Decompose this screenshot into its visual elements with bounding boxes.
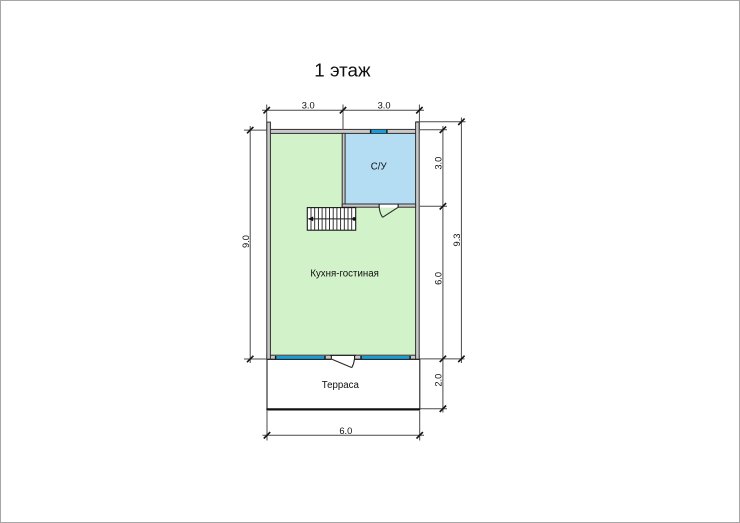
svg-text:1 этаж: 1 этаж <box>314 60 371 81</box>
svg-text:Кухня-гостиная: Кухня-гостиная <box>310 268 379 279</box>
svg-text:Терраса: Терраса <box>322 380 360 391</box>
svg-text:3.0: 3.0 <box>302 100 315 110</box>
svg-text:С/У: С/У <box>371 162 388 173</box>
svg-text:2.0: 2.0 <box>434 374 444 387</box>
svg-text:3.0: 3.0 <box>378 100 391 110</box>
svg-text:9.3: 9.3 <box>452 234 462 247</box>
svg-text:6.0: 6.0 <box>434 272 444 285</box>
svg-text:3.0: 3.0 <box>434 157 444 170</box>
svg-text:6.0: 6.0 <box>339 426 352 436</box>
svg-text:9.0: 9.0 <box>241 235 251 248</box>
